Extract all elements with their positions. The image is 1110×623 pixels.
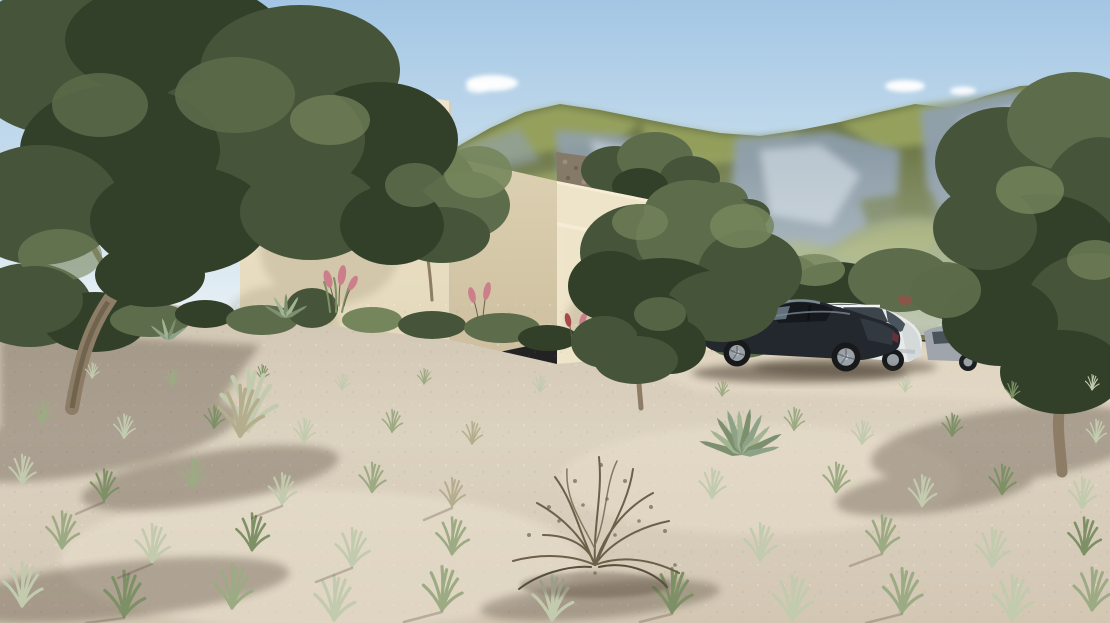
rendering-canvas (0, 0, 1110, 623)
